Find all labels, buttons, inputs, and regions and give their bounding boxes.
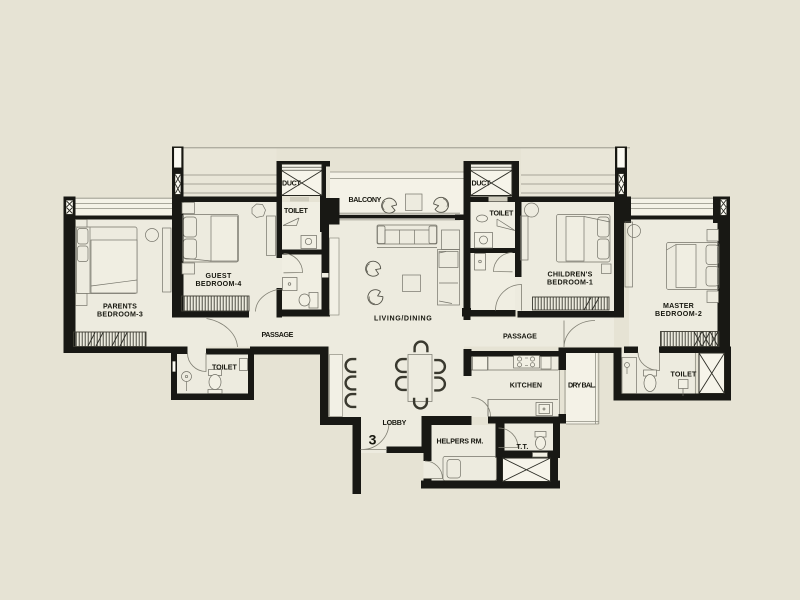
svg-text:TOILET: TOILET — [490, 210, 514, 218]
svg-text:TOILET: TOILET — [212, 364, 237, 372]
svg-text:BALCONY: BALCONY — [349, 196, 382, 204]
svg-text:DUCT: DUCT — [282, 180, 301, 188]
svg-text:DRY BAL.: DRY BAL. — [568, 382, 596, 390]
svg-text:BEDROOM-4: BEDROOM-4 — [196, 280, 242, 288]
svg-text:CHILDREN'S: CHILDREN'S — [548, 271, 593, 279]
svg-text:LOBBY: LOBBY — [383, 419, 407, 427]
svg-text:KITCHEN: KITCHEN — [510, 382, 543, 390]
svg-text:PARENTS: PARENTS — [103, 303, 137, 311]
svg-text:HELPERS RM.: HELPERS RM. — [437, 438, 484, 446]
svg-text:BEDROOM-1: BEDROOM-1 — [547, 279, 593, 287]
svg-text:BEDROOM-3: BEDROOM-3 — [97, 311, 143, 319]
svg-text:MASTER: MASTER — [663, 302, 694, 310]
svg-text:GUEST: GUEST — [206, 272, 232, 280]
svg-text:TOILET: TOILET — [671, 371, 697, 379]
svg-text:DUCT: DUCT — [472, 180, 491, 188]
svg-text:BEDROOM-2: BEDROOM-2 — [655, 310, 702, 318]
svg-text:PASSAGE: PASSAGE — [262, 331, 294, 339]
svg-text:T.T.: T.T. — [517, 443, 529, 451]
svg-text:PASSAGE: PASSAGE — [503, 333, 537, 341]
svg-text:3: 3 — [369, 432, 377, 448]
svg-text:LIVING/DINING: LIVING/DINING — [374, 315, 432, 323]
svg-text:TOILET: TOILET — [284, 207, 308, 215]
